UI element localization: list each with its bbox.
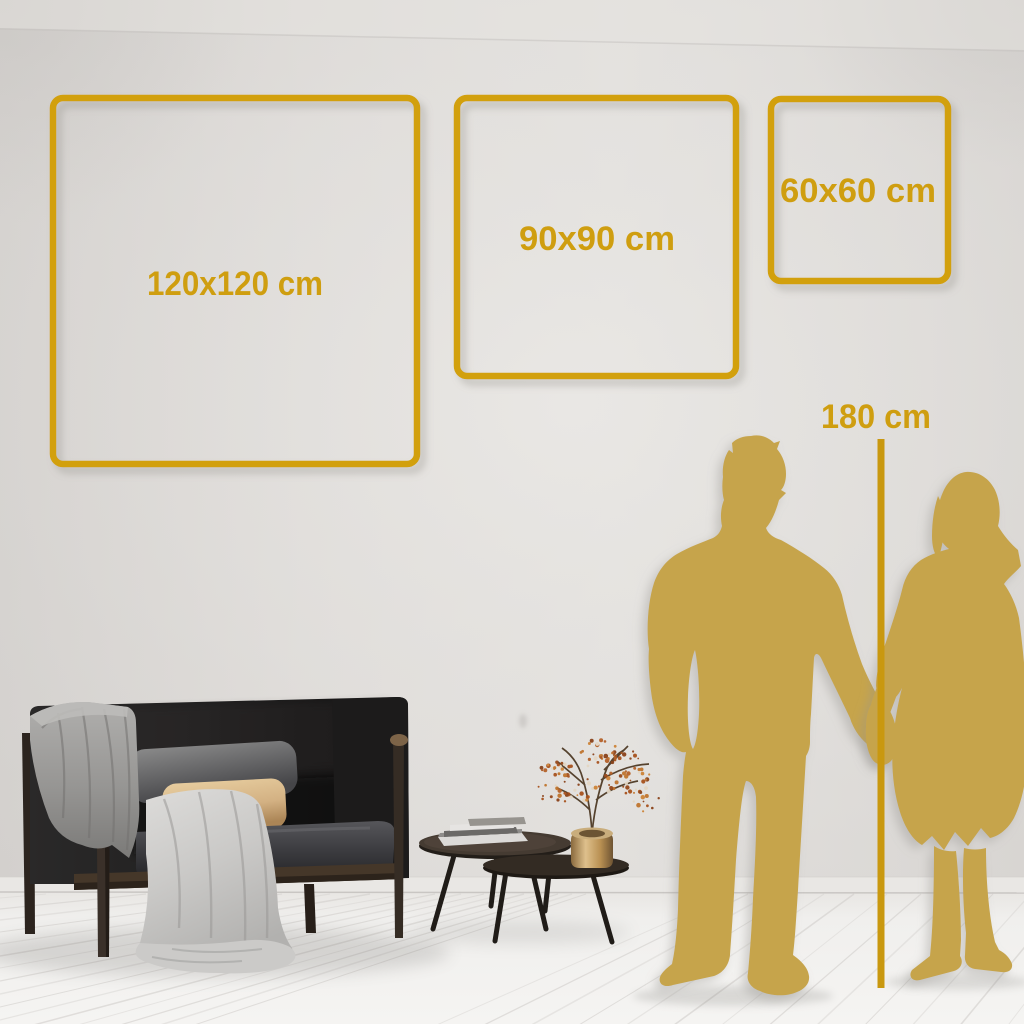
svg-text:180 cm: 180 cm [821, 398, 931, 436]
svg-text:60x60 cm: 60x60 cm [780, 172, 936, 210]
svg-text:120x120 cm: 120x120 cm [147, 265, 323, 303]
svg-text:90x90 cm: 90x90 cm [519, 220, 675, 258]
